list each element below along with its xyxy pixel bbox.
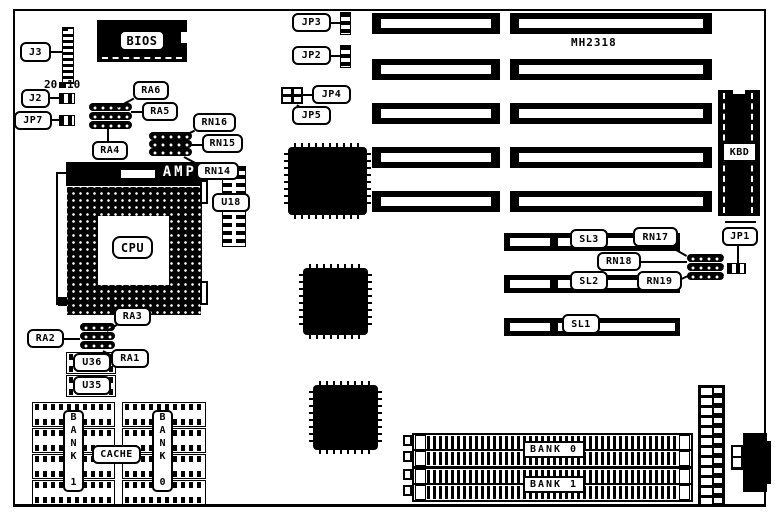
- label-rn17: RN17: [633, 227, 678, 247]
- j3-end-pin: [59, 82, 66, 88]
- board-id-text: MH2318: [571, 36, 617, 49]
- pointer-line: [51, 119, 60, 121]
- isa-slot-segment: [510, 103, 712, 124]
- label-u18: U18: [212, 193, 250, 212]
- label-simm-bank1: BANK 1: [523, 476, 585, 493]
- isa-slot-segment: [372, 59, 500, 80]
- jp2-connector: [340, 45, 351, 68]
- qfp-chip: [288, 147, 367, 215]
- label-rn15: RN15: [202, 134, 243, 153]
- label-rn14: RN14: [196, 162, 239, 180]
- isa-slot-segment: [372, 147, 500, 168]
- isa-slot-segment: [510, 13, 712, 34]
- resistor-array-ra4: [89, 121, 132, 129]
- qfp-chip: [313, 385, 378, 450]
- label-ra6: RA6: [133, 81, 169, 100]
- resistor-array-ra5: [89, 112, 132, 120]
- label-jp3: JP3: [292, 13, 331, 32]
- label-jp1: JP1: [722, 227, 758, 246]
- resistor-array-rn17: [687, 254, 724, 262]
- power-connector: [698, 385, 725, 507]
- simm-end-tab: [403, 469, 412, 480]
- din-keyboard-connector-body: [743, 441, 771, 484]
- isa-slot-segment: [510, 147, 712, 168]
- jp4-jp5-connector: [281, 87, 303, 104]
- din-pin: [733, 458, 741, 467]
- din-pin: [733, 447, 741, 456]
- qfp-chip: [303, 268, 368, 335]
- label-jp7: JP7: [14, 111, 52, 130]
- isa-slot-segment: [372, 13, 500, 34]
- pointer-line: [640, 261, 687, 263]
- jp1-connector: [727, 263, 746, 274]
- label-u35: U35: [73, 376, 111, 395]
- label-rn18: RN18: [597, 252, 641, 271]
- label-ra3: RA3: [114, 307, 151, 326]
- isa-slot-segment: [510, 191, 712, 212]
- kbd-chip-notch: [733, 90, 745, 94]
- label-bios: BIOS: [119, 30, 165, 51]
- socket-lever-bar: AMP: [66, 162, 202, 186]
- label-ra1: RA1: [111, 349, 149, 368]
- jp7-connector: [59, 115, 75, 126]
- isa-slot-segment: [372, 191, 500, 212]
- pointer-line: [63, 338, 80, 340]
- simm-end-tab: [403, 435, 412, 446]
- simm-end-tab: [403, 451, 412, 462]
- socket-key-bottom: [200, 281, 208, 305]
- label-jp4: JP4: [312, 85, 351, 104]
- isa-slot-segment: [510, 59, 712, 80]
- resistor-array-rn18: [687, 263, 724, 271]
- label-ra4: RA4: [92, 141, 128, 160]
- motherboard-diagram: J3 20 10 J2 JP7 BIOS RA6 RA5 RA4 RN16 RN…: [0, 0, 775, 516]
- label-sl3: SL3: [570, 229, 608, 249]
- label-cpu: CPU: [112, 236, 153, 259]
- pointer-line: [49, 51, 63, 53]
- jp3-connector: [340, 12, 351, 35]
- pointer-line: [737, 246, 739, 263]
- label-cache-bank0: BANK 0: [152, 410, 173, 492]
- label-cache: CACHE: [92, 445, 141, 464]
- pointer-line: [303, 94, 312, 96]
- label-kbd: KBD: [723, 143, 756, 161]
- simm-end-tab: [403, 485, 412, 496]
- label-rn16: RN16: [193, 113, 236, 132]
- bios-chip-notch: [181, 32, 187, 43]
- resistor-array-rn19: [687, 272, 724, 280]
- resistor-array-ra1: [80, 341, 115, 349]
- label-cache-bank1: BANK 1: [63, 410, 84, 492]
- lever-slot: [121, 170, 155, 178]
- resistor-array-rn14: [149, 148, 192, 156]
- isa-slot-segment: [372, 103, 500, 124]
- kbd-trace-line: [725, 221, 756, 223]
- j3-pin-10: 10: [67, 78, 80, 91]
- label-sl1: SL1: [562, 314, 600, 334]
- resistor-array-ra2: [80, 332, 115, 340]
- socket-key-top: [200, 180, 208, 204]
- j2-connector: [59, 93, 75, 104]
- label-ra2: RA2: [27, 329, 64, 348]
- j3-pin-header: [62, 27, 74, 84]
- socket-brand-text: AMP: [163, 164, 197, 180]
- label-jp5: JP5: [292, 106, 331, 125]
- label-sl2: SL2: [570, 271, 608, 291]
- resistor-array-rn15: [149, 140, 192, 148]
- label-simm-bank0: BANK 0: [523, 441, 585, 458]
- label-u36: U36: [73, 353, 111, 372]
- label-j3: J3: [20, 42, 51, 62]
- label-j2: J2: [21, 89, 50, 108]
- label-ra5: RA5: [142, 102, 178, 121]
- label-rn19: RN19: [637, 271, 682, 291]
- j3-pin1-notch: [68, 29, 73, 34]
- resistor-array-ra6: [89, 103, 132, 111]
- label-jp2: JP2: [292, 46, 331, 65]
